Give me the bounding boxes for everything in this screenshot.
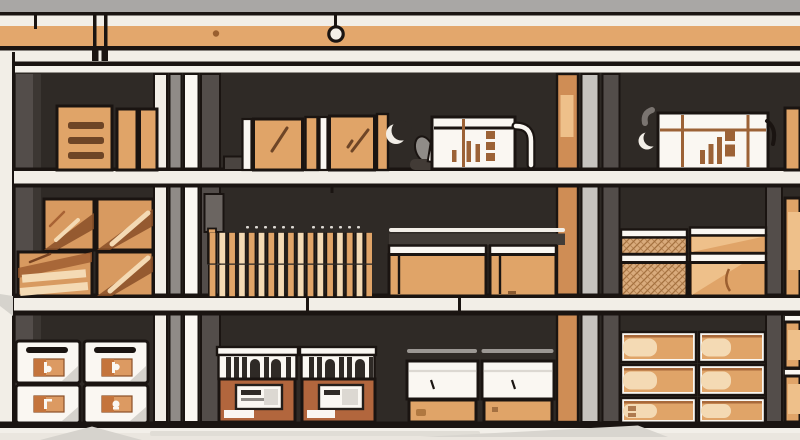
unit-base-line [0,422,800,429]
lidded-bin-1 [389,246,486,297]
drawer-bottom-right [84,385,148,423]
wooden-crate-bottom-right [97,252,153,296]
wall-plug-dot [213,30,219,36]
base-and-floor [0,422,800,440]
lidded-bin-2 [490,246,556,297]
tan-carton-upper [690,228,766,254]
tan-carton-lower [690,254,766,297]
open-bin-2 [482,361,554,422]
left-white-frame [0,52,15,428]
carton [699,365,765,395]
carton [621,365,696,395]
market-stall-1 [217,347,298,422]
slim-cartons [117,109,157,170]
mesh-crate-upper [621,230,687,255]
ceiling [0,0,800,73]
wooden-crate-top-left [44,199,94,250]
wall-band [0,0,800,13]
carton [699,332,765,362]
carton [621,398,696,423]
wooden-crate-top-right [97,199,153,250]
market-stall-2 [300,347,376,422]
right-partition-planks [557,74,620,422]
taped-box-2 [330,116,375,170]
edge-carton-stack [785,316,800,422]
carton [699,398,765,423]
open-bin-1 [407,361,478,422]
shelf-illustration [0,0,800,440]
slim-carton [377,114,388,170]
plank-strip [320,117,328,170]
gray-box [205,194,224,232]
plank-strip [243,119,252,170]
edge-carton [785,108,800,170]
carton-grid-2x3 [621,332,765,423]
taped-box-1 [254,119,303,170]
lidded-bins [389,228,565,296]
slim-carton [306,117,318,170]
lumber-slat-rows [208,229,372,297]
support-beam [0,26,800,46]
bottle-crate-middle [432,117,515,169]
drawer-bottom-left [16,385,80,423]
illustration-canvas: Warehouse shelving unit with three shelv… [0,0,800,440]
mesh-crate-lower [621,255,687,297]
bottle-crate-right [658,113,774,169]
edge-carton [785,198,800,296]
drawer-top-left [16,341,80,383]
lined-carton [57,106,112,170]
carton [621,332,696,362]
drawer-top-right [84,341,148,383]
wooden-crate-bottom-left [18,252,92,296]
